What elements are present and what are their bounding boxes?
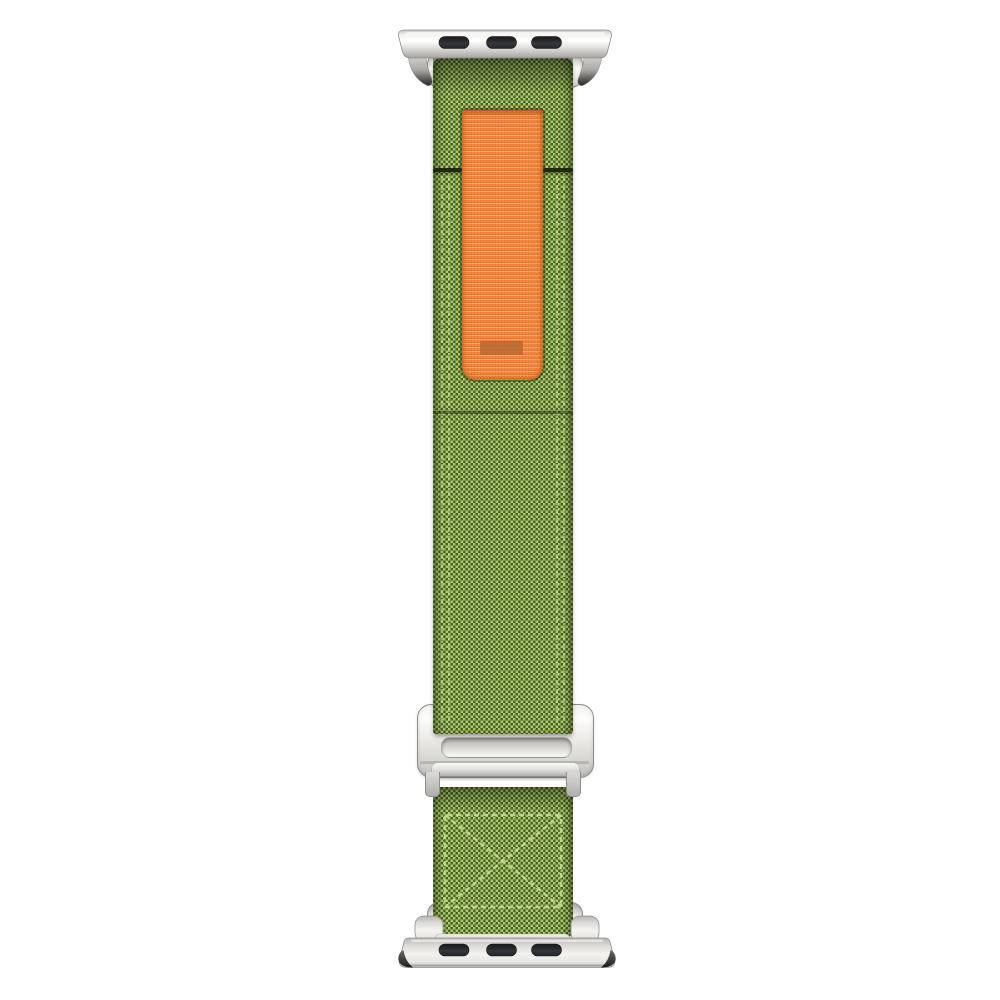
edge-stitch-line: [556, 176, 558, 724]
adapter-pin-slot: [532, 944, 562, 956]
lower-strap-shadow: [433, 787, 573, 811]
fold-seam-right: [543, 168, 573, 172]
pull-tab-marker: [480, 341, 523, 355]
watch-lug-adapter-top: [395, 28, 615, 90]
buckle-groove: [441, 737, 572, 758]
product-photo: [0, 0, 1000, 1000]
adapter-pin-slot: [487, 944, 517, 956]
adapter-claw-left: [408, 55, 432, 86]
adapter-pin-slot: [532, 37, 562, 49]
adapter-pin-slot: [439, 944, 469, 956]
buckle-bridge-bar: [432, 763, 579, 777]
flap-edge-seam: [433, 410, 573, 414]
upper-strap: [433, 58, 573, 734]
adapter-highlight: [405, 32, 605, 35]
adapter-pin-slot: [439, 37, 469, 49]
adapter-highlight: [411, 940, 603, 943]
edge-stitch-line: [563, 176, 565, 724]
adapter-pin-slot: [487, 37, 517, 49]
watch-lug-adapter-bottom: [393, 910, 621, 974]
adapter-bottom-edge: [405, 965, 609, 967]
adapter-claw-right: [578, 55, 602, 86]
orange-pull-tab: [462, 110, 543, 380]
fold-seam-left: [433, 168, 462, 172]
edge-stitch-line: [448, 176, 450, 724]
buckle-post-right: [566, 772, 581, 797]
buckle-post-left: [425, 772, 440, 797]
edge-stitch-line: [441, 176, 443, 724]
box-x-stitch: [443, 813, 563, 909]
